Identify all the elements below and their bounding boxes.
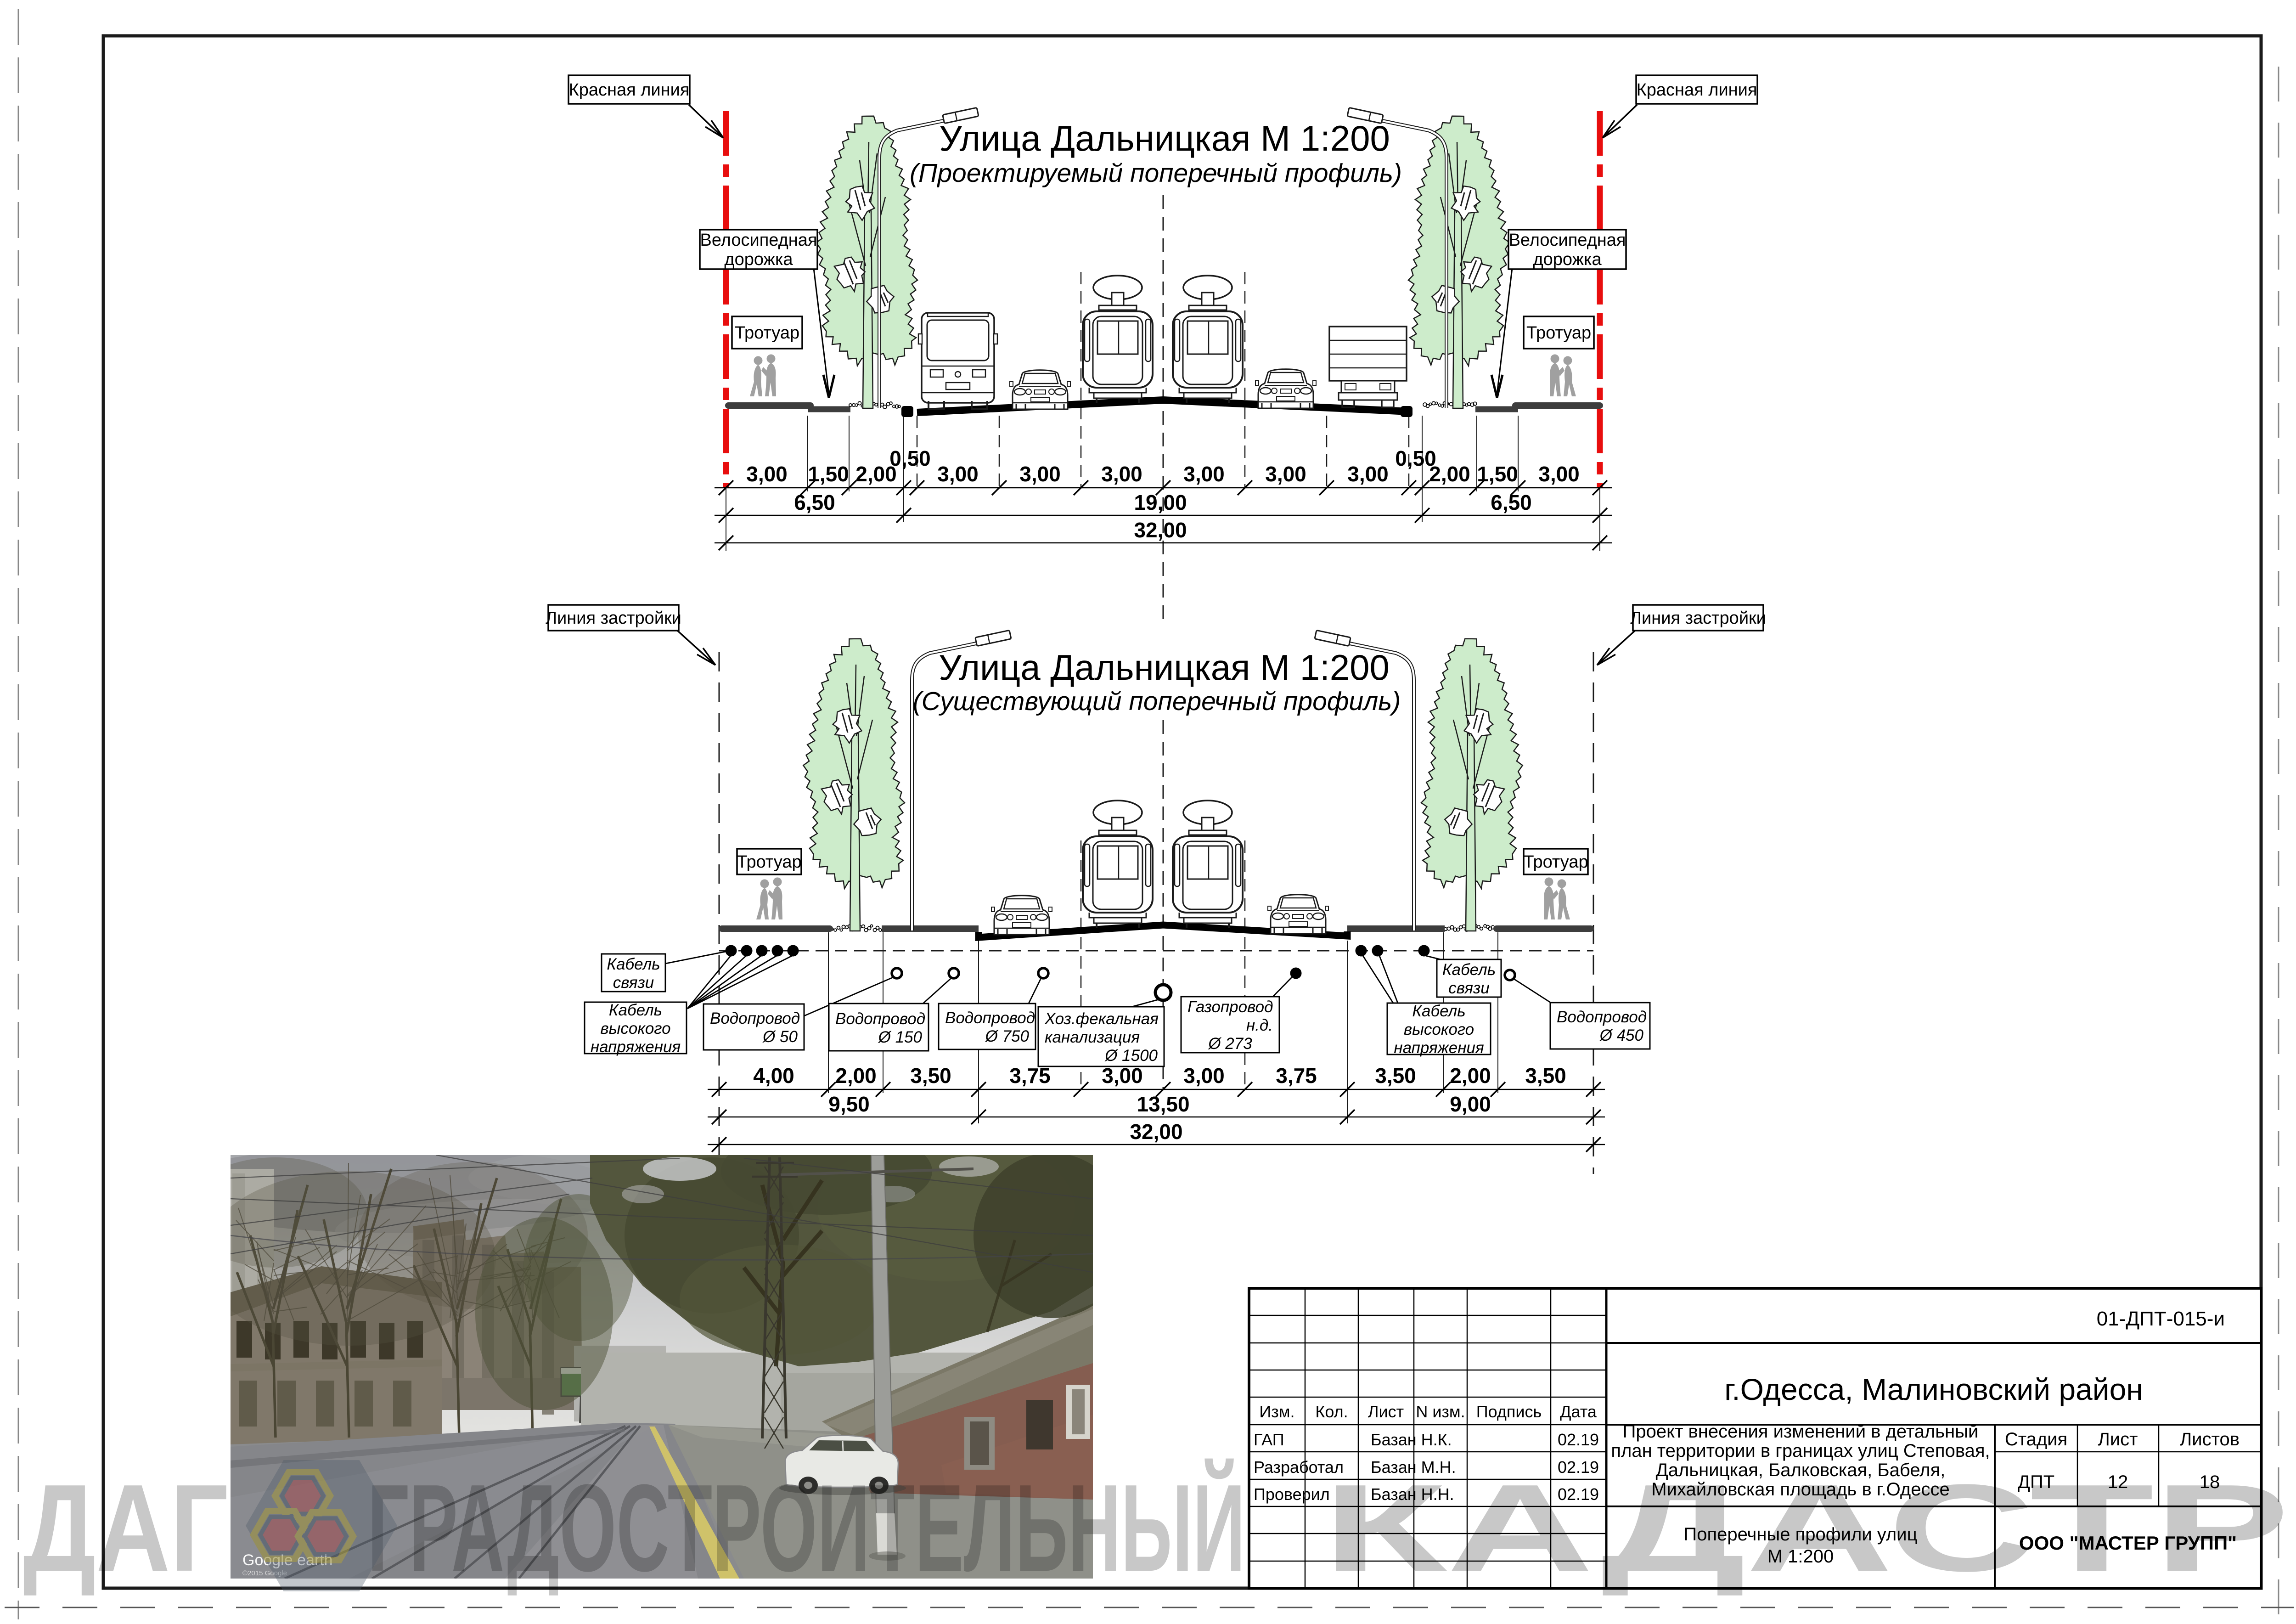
svg-text:н.д.: н.д. bbox=[1246, 1016, 1273, 1034]
svg-text:Тротуар: Тротуар bbox=[735, 323, 799, 343]
svg-text:Проверил: Проверил bbox=[1254, 1485, 1330, 1504]
svg-text:Ø 273: Ø 273 bbox=[1208, 1035, 1252, 1053]
svg-text:высокого: высокого bbox=[600, 1020, 670, 1038]
svg-text:Базан Н.К.: Базан Н.К. bbox=[1371, 1430, 1452, 1449]
svg-text:3,00: 3,00 bbox=[937, 462, 979, 486]
svg-text:высокого: высокого bbox=[1404, 1021, 1474, 1038]
svg-text:1,50: 1,50 bbox=[1477, 462, 1518, 486]
svg-text:13,50: 13,50 bbox=[1137, 1092, 1189, 1116]
svg-text:Ø 1500: Ø 1500 bbox=[1104, 1047, 1158, 1065]
svg-text:6,50: 6,50 bbox=[794, 491, 835, 514]
svg-text:Красная линия: Красная линия bbox=[1637, 80, 1757, 100]
svg-text:3,00: 3,00 bbox=[1101, 462, 1142, 486]
svg-text:3,75: 3,75 bbox=[1009, 1064, 1051, 1088]
svg-text:ДАГ: ДАГ bbox=[23, 1459, 228, 1597]
svg-text:3,00: 3,00 bbox=[1183, 462, 1225, 486]
svg-text:Тротуар: Тротуар bbox=[1523, 852, 1588, 872]
svg-text:0,50: 0,50 bbox=[889, 446, 931, 470]
svg-text:4,00: 4,00 bbox=[753, 1064, 794, 1088]
svg-text:канализация: канализация bbox=[1045, 1028, 1140, 1046]
svg-text:Ø 50: Ø 50 bbox=[762, 1028, 798, 1046]
svg-text:3,00: 3,00 bbox=[1183, 1064, 1225, 1088]
svg-text:КАДАСТР: КАДАСТР bbox=[1322, 1459, 2290, 1597]
svg-text:2,00: 2,00 bbox=[835, 1064, 877, 1088]
svg-text:связи: связи bbox=[613, 974, 654, 992]
svg-text:0,50: 0,50 bbox=[1395, 446, 1436, 470]
svg-text:Подпись: Подпись bbox=[1476, 1402, 1542, 1421]
svg-text:3,50: 3,50 bbox=[1525, 1064, 1566, 1088]
svg-text:3,00: 3,00 bbox=[1347, 462, 1389, 486]
svg-text:3,00: 3,00 bbox=[1538, 462, 1580, 486]
svg-text:Ø 450: Ø 450 bbox=[1599, 1026, 1644, 1044]
svg-text:Линия застройки: Линия застройки bbox=[546, 609, 681, 628]
svg-text:32,00: 32,00 bbox=[1134, 518, 1187, 542]
svg-text:3,50: 3,50 bbox=[1375, 1064, 1416, 1088]
svg-text:Ø 750: Ø 750 bbox=[985, 1027, 1030, 1045]
svg-text:Улица Дальницкая М 1:200: Улица Дальницкая М 1:200 bbox=[939, 647, 1390, 688]
svg-text:Линия застройки: Линия застройки bbox=[1630, 609, 1766, 628]
svg-text:план территории в границах ули: план территории в границах улиц Степовая… bbox=[1611, 1441, 1990, 1461]
svg-text:Ø 150: Ø 150 bbox=[878, 1028, 923, 1046]
svg-text:N изм.: N изм. bbox=[1416, 1402, 1465, 1421]
svg-text:Водопровод: Водопровод bbox=[835, 1010, 925, 1028]
svg-text:ГАП: ГАП bbox=[1254, 1430, 1284, 1449]
svg-text:3,00: 3,00 bbox=[1265, 462, 1306, 486]
svg-text:Стадия: Стадия bbox=[2005, 1429, 2067, 1449]
svg-text:Дата: Дата bbox=[1560, 1402, 1597, 1421]
svg-text:Проект внесения изменений в де: Проект внесения изменений в детальный bbox=[1623, 1421, 1979, 1442]
svg-text:Изм.: Изм. bbox=[1259, 1402, 1294, 1421]
svg-text:2,00: 2,00 bbox=[1450, 1064, 1491, 1088]
svg-text:Лист: Лист bbox=[2098, 1429, 2138, 1449]
svg-text:01-ДПТ-015-и: 01-ДПТ-015-и bbox=[2097, 1308, 2225, 1330]
svg-text:3,00: 3,00 bbox=[1019, 462, 1061, 486]
svg-text:(Существующий поперечный профи: (Существующий поперечный профиль) bbox=[913, 687, 1401, 716]
svg-text:г.Одесса, Малиновский район: г.Одесса, Малиновский район bbox=[1724, 1372, 2143, 1406]
svg-text:32,00: 32,00 bbox=[1130, 1120, 1182, 1144]
svg-text:3,00: 3,00 bbox=[1102, 1064, 1143, 1088]
svg-text:6,50: 6,50 bbox=[1491, 491, 1532, 514]
svg-text:дорожка: дорожка bbox=[1533, 250, 1602, 269]
svg-text:Кабель: Кабель bbox=[607, 955, 660, 973]
svg-text:Кабель: Кабель bbox=[609, 1001, 662, 1019]
svg-text:Кол.: Кол. bbox=[1315, 1402, 1348, 1421]
svg-text:3,50: 3,50 bbox=[910, 1064, 951, 1088]
svg-text:19,00: 19,00 bbox=[1134, 491, 1187, 514]
svg-text:Тротуар: Тротуар bbox=[737, 852, 801, 872]
svg-text:ГРАДОСТРОИТЕЛЬНЫЙ: ГРАДОСТРОИТЕЛЬНЫЙ bbox=[367, 1458, 1245, 1597]
svg-text:9,00: 9,00 bbox=[1450, 1092, 1491, 1116]
svg-text:Красная линия: Красная линия bbox=[569, 80, 690, 100]
svg-text:Лист: Лист bbox=[1368, 1402, 1404, 1421]
svg-text:связи: связи bbox=[1448, 979, 1489, 997]
svg-text:Водопровод: Водопровод bbox=[945, 1009, 1035, 1027]
svg-text:Кабель: Кабель bbox=[1412, 1002, 1465, 1020]
svg-text:Водопровод: Водопровод bbox=[1557, 1008, 1647, 1026]
svg-text:3,00: 3,00 bbox=[746, 462, 788, 486]
svg-text:Велосипедная: Велосипедная bbox=[1509, 231, 1626, 250]
svg-text:напряжения: напряжения bbox=[1394, 1039, 1484, 1057]
svg-text:Кабель: Кабель bbox=[1442, 961, 1496, 979]
svg-text:Водопровод: Водопровод bbox=[710, 1009, 800, 1027]
svg-text:Тротуар: Тротуар bbox=[1526, 323, 1591, 343]
svg-text:Листов: Листов bbox=[2180, 1429, 2240, 1449]
svg-text:Хоз.фекальная: Хоз.фекальная bbox=[1044, 1010, 1159, 1028]
svg-text:Газопровод: Газопровод bbox=[1187, 998, 1273, 1016]
svg-text:3,75: 3,75 bbox=[1276, 1064, 1317, 1088]
svg-text:02.19: 02.19 bbox=[1558, 1430, 1599, 1449]
svg-text:дорожка: дорожка bbox=[724, 250, 793, 269]
svg-text:(Проектируемый поперечный проф: (Проектируемый поперечный профиль) bbox=[910, 158, 1402, 188]
svg-text:9,50: 9,50 bbox=[828, 1092, 870, 1116]
svg-text:Велосипедная: Велосипедная bbox=[700, 231, 817, 250]
svg-text:напряжения: напряжения bbox=[591, 1038, 681, 1056]
svg-text:1,50: 1,50 bbox=[808, 462, 849, 486]
svg-text:Улица Дальницкая М 1:200: Улица Дальницкая М 1:200 bbox=[939, 118, 1390, 158]
